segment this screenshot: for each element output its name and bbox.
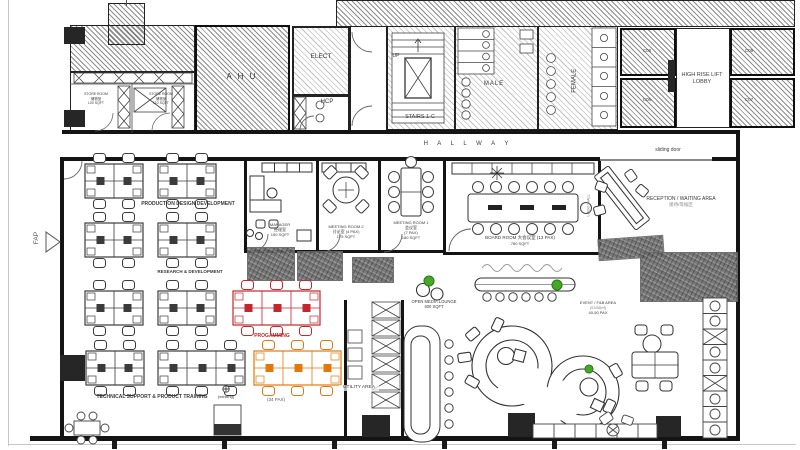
dining-set <box>632 325 678 391</box>
hallway-label: H A L L W A Y <box>408 141 528 149</box>
reception-label: RECEPTION / WAITING AREA接待/等候区 <box>641 196 721 208</box>
boardroom-furniture <box>452 163 594 235</box>
meeting1-room-label: MEETING ROOM 1会议室(7 PAX)180 SQFT <box>381 220 441 240</box>
fnb-label: EVENT / F&B AREA(53/88㎡)40-50 PAX <box>566 300 630 315</box>
ahu-label: A H U <box>212 72 272 82</box>
column-top-1 <box>64 27 85 44</box>
lounge-pod-b <box>528 356 623 428</box>
grid-tick <box>112 441 117 449</box>
column-left-1 <box>60 355 85 381</box>
store-room-1-label: STORE ROOM储物室100 SQFT <box>78 92 114 106</box>
office-top-wall <box>62 157 600 161</box>
meeting1-furniture <box>389 157 434 217</box>
fap-label: FAP <box>33 223 41 253</box>
workstation-cluster-black <box>85 281 143 336</box>
stairs-label: STAIRS 1-C <box>395 114 445 121</box>
up-label: UP <box>386 53 406 59</box>
lift-shaft-c07 <box>730 78 795 128</box>
utility-dark-block <box>362 415 390 437</box>
store-room-2-label: STORE ROOM储物室110 SQFT <box>143 92 179 106</box>
utility-equipment <box>348 302 400 408</box>
bottom-counter <box>533 411 657 438</box>
workstation-cluster-red <box>233 281 320 336</box>
cabinet-photo-1 <box>247 247 295 281</box>
female-label: FEMALE <box>571 61 579 101</box>
cabinet-photo-2 <box>297 251 343 281</box>
lift-c07-label: C07 <box>740 97 758 103</box>
grid-line-left <box>8 0 9 446</box>
workstation-cluster-black <box>158 213 216 268</box>
grid-tick <box>222 441 227 449</box>
workstation-cluster-orange <box>254 341 341 396</box>
meeting2-room-label: MEETING ROOM 2讨论室 (4 PAX)175 SQFT <box>316 224 376 239</box>
tech-zone-label: TECHNICAL SUPPORT & PRODUCT TRAINING <box>87 394 217 400</box>
lift-wall-block <box>668 60 675 92</box>
plant <box>585 365 593 373</box>
logo-wall-label: LOGO WALL <box>587 183 592 227</box>
wall-manager-left <box>244 161 247 252</box>
workstation-cluster-black <box>158 341 245 396</box>
workstation-cluster-black <box>86 341 144 396</box>
programming-zone-label: PROGAMMING <box>237 333 307 339</box>
lounge-label: OPEN MEDIA LOUNGE400 SQFT <box>399 299 469 310</box>
grid-tick <box>662 441 667 449</box>
board-room-label: BOARD ROOM 大会议室 (13 PAX)780 SQFT <box>455 235 585 246</box>
grid-tick <box>332 441 337 449</box>
manager-room-label: MANAGER经理室150 SQFT <box>250 222 310 237</box>
wall-utility-right <box>401 300 404 437</box>
hatch-left-band <box>70 25 195 72</box>
programming-pax-label: (34 PAX) <box>251 397 301 403</box>
bar-counter <box>417 265 576 302</box>
male-toilet <box>455 26 538 130</box>
lounge-pod-a <box>458 317 561 414</box>
existing-label: (existing) <box>206 394 246 399</box>
production-zone-label: PRODUCTION DESIGN DEVELOPMENT <box>133 201 243 207</box>
cabinet-photo-3 <box>352 257 394 283</box>
grid-tick <box>552 441 557 449</box>
wall-mtg1-bottom <box>378 250 446 253</box>
core-bottom-wall <box>62 130 740 134</box>
fap-marker <box>46 232 60 252</box>
ref-line <box>126 0 127 6</box>
grid-line-bottom <box>8 444 796 445</box>
dining-dark-block <box>656 416 681 437</box>
lift-c05-label: C05 <box>740 48 758 54</box>
male-label: MALE <box>474 81 514 89</box>
left-wall <box>60 157 64 438</box>
utility-label: UTILITY AREA <box>339 385 379 391</box>
workstation-cluster-black <box>158 281 216 336</box>
workstation-cluster-black <box>85 213 143 268</box>
plant <box>424 276 434 286</box>
hcp-label: HCP <box>312 99 342 107</box>
grid-tick <box>442 441 447 449</box>
plant <box>552 280 562 290</box>
rnd-zone-label: RESEARCH & DEVELOPMENT <box>125 269 255 275</box>
lift-lobby-label: HIGH RISE LIFT LOBBY <box>676 72 728 86</box>
decorative-script <box>482 265 562 272</box>
elect-label: ELECT <box>301 53 341 61</box>
wall-board-bottom <box>443 252 600 255</box>
column-top-2 <box>64 110 85 127</box>
lounge-column <box>508 413 535 437</box>
lift-c08-label: C08 <box>637 48 657 54</box>
wall-utility-left <box>344 300 347 437</box>
wall-logo <box>598 161 601 247</box>
wall-board-left <box>443 161 446 254</box>
feature-wall-photo-2 <box>640 252 738 302</box>
floor-plan: A H U ELECT HCP UP STAIRS 1-C MALE FEMAL… <box>0 0 800 450</box>
banquette <box>404 326 453 442</box>
locker-strip <box>703 298 727 438</box>
meeting2-furniture <box>322 163 370 214</box>
core-corridor <box>350 26 387 132</box>
sliding-door-label: sliding door <box>638 147 698 153</box>
sliding-door-line <box>600 159 712 161</box>
lift-c06-label: C06 <box>637 97 657 103</box>
hatch-top-strip <box>336 0 795 27</box>
